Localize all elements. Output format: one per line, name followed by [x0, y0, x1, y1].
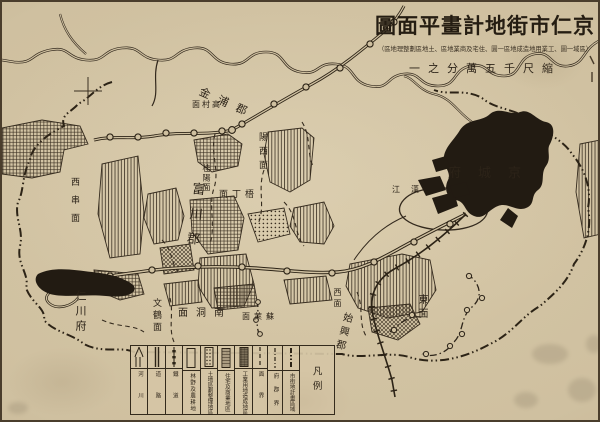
dash-dot-line-symbol [268, 346, 282, 371]
grid-rect-symbol [218, 346, 234, 371]
river-path [152, 60, 158, 106]
legend-label: 府郡界 [272, 373, 278, 414]
legend-label: 鐵道 [171, 371, 177, 414]
river-path [60, 14, 86, 54]
river-symbol [131, 346, 147, 369]
legend-item-land-readjustment: 土地區劃整理地區 [201, 346, 218, 414]
legend-label: 道路 [154, 371, 160, 414]
river-path [354, 216, 406, 260]
legend-label: 面界 [257, 371, 263, 414]
legend-label: 市街地計畫區域 [288, 373, 294, 412]
district-polygon [290, 202, 334, 244]
place-label-sorai-myon: 面萊蘇 [242, 313, 278, 321]
place-label-jinsen-fu: 仁川府 [75, 290, 86, 335]
district-polygon [214, 284, 258, 310]
legend-label: 住宅及商業地區 [223, 373, 229, 412]
keijo-built-up-spur [500, 208, 518, 228]
legend-item-forest-farmland: 林野及農耕地 [183, 346, 200, 414]
place-label-sokot-myon: 西串面 [69, 177, 78, 231]
place-label-ojong-myon: 面丁梧 [219, 191, 258, 200]
legend-label: 林野及農耕地 [189, 373, 195, 412]
legend-item-planning-area: 市街地計畫區域 [283, 346, 300, 414]
map-scale: 一之分萬五千尺縮 [372, 60, 598, 76]
district-polygon [248, 208, 290, 242]
legend-item-myon-boundary: 面界 [253, 346, 268, 414]
legend-label: 工業用地造成地區 [241, 371, 247, 415]
legend-item-railway: 鐵道 [166, 346, 183, 414]
title-block: 圖面平畫計地街市仁京 （區地理整劃區地土、區地業商及宅住、圜一區地成造地用業工、… [372, 10, 598, 76]
place-label-kochon-myon: 面村高 [192, 101, 222, 109]
legend-item-residential-commercial: 住宅及商業地區 [218, 346, 235, 414]
river-path [60, 14, 86, 54]
map-title: 圖面平畫計地街市仁京 [372, 10, 598, 40]
dashed-line-symbol [253, 346, 267, 369]
district-polygon [368, 304, 420, 340]
legend-title: 凡例 [309, 366, 323, 395]
district-polygon [264, 128, 314, 192]
place-label-so-myon: 西面 [333, 288, 341, 310]
place-label-bunkaku-myon: 文鶴面 [151, 298, 160, 334]
place-label-keijo-fu: 府城京 [448, 167, 538, 180]
legend-title-cell: 凡例 [300, 346, 331, 414]
graticule-cross [74, 77, 102, 105]
legend-label: 土地區劃整理地區 [206, 371, 212, 415]
district-polygon [284, 276, 332, 304]
road-symbol [148, 346, 164, 369]
legend-item-road: 道路 [148, 346, 165, 414]
place-label-yangso-myon: 陽西面 [257, 132, 266, 174]
legend-box: 河川 道路 鐵道 林野及農耕地 土地區劃整理地區 [130, 345, 335, 415]
railway-symbol [166, 346, 182, 369]
dash-dot-dot-line-symbol [283, 346, 299, 371]
river-path [404, 76, 472, 122]
district-polygon [164, 280, 202, 306]
map-sheet: 圖面平畫計地街市仁京 （區地理整劃區地土、區地業商及宅住、圜一區地成造地用業工、… [0, 0, 600, 422]
place-label-namdong-myon: 面洞南 [178, 309, 232, 319]
dotted-rect-symbol [201, 346, 217, 369]
legend-item-fu-gun-boundary: 府郡界 [268, 346, 283, 414]
place-label-dong-myon: 東面 [416, 294, 426, 322]
district-polygon [2, 120, 88, 178]
place-label-han-river: 江漢 [392, 186, 430, 194]
legend-item-river: 河川 [131, 346, 148, 414]
district-polygon [98, 156, 144, 258]
shaded-rect-symbol [235, 346, 251, 369]
legend-label: 河川 [136, 371, 142, 414]
plain-rect-symbol [183, 346, 199, 371]
keijo-built-up [444, 111, 554, 217]
map-subtitle: （區地理整劃區地土、區地業商及宅住、圜一區地成造地用業工、圜一域區） [372, 44, 598, 53]
district-polygon [144, 188, 184, 244]
legend-item-industrial-land: 工業用地造成地區 [235, 346, 252, 414]
boundary-path [102, 320, 144, 332]
